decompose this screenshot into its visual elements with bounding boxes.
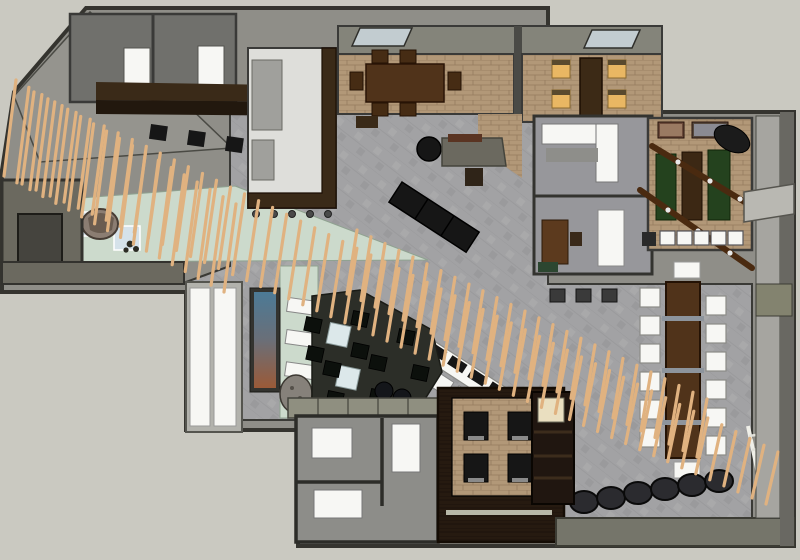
dining-room-b (522, 54, 662, 122)
lounge-west-wall (186, 282, 242, 432)
round-table (417, 137, 441, 161)
white-fixture (314, 490, 362, 518)
games-room (640, 118, 758, 268)
service-box (356, 116, 378, 128)
light-panel (214, 288, 236, 426)
white-cabinet (598, 210, 624, 266)
light-strip (446, 510, 552, 515)
end-chair (674, 262, 700, 278)
desk-chair (570, 232, 582, 246)
counter (252, 140, 274, 180)
green-mat (538, 262, 558, 272)
cube-stool (465, 168, 483, 186)
picture-art (660, 124, 682, 136)
floorplan-svg (0, 0, 800, 560)
skylight-window (584, 30, 640, 48)
dining-table (580, 58, 602, 116)
low-counter (546, 148, 598, 162)
white-fixture (392, 424, 420, 472)
white-fixture (312, 428, 352, 458)
bench (442, 138, 506, 166)
floorplan-render (0, 0, 800, 560)
white-bar-stools (660, 231, 743, 245)
south-wall (2, 262, 184, 284)
doorway (18, 214, 62, 266)
game-table-wood (682, 152, 702, 220)
mural-art (254, 292, 276, 388)
bar-end (642, 232, 656, 246)
kitchen (248, 48, 336, 218)
dark-stools (550, 289, 617, 302)
skylight-window (352, 28, 412, 46)
partition-wall (514, 26, 522, 122)
mural-wall (250, 288, 280, 392)
dining-table (366, 64, 444, 102)
counter (252, 60, 282, 130)
light-panel (190, 288, 210, 426)
wall-window (756, 284, 792, 316)
desk (542, 220, 568, 264)
bench-back (448, 134, 482, 142)
pantry-office-rooms (534, 116, 652, 274)
white-counter (596, 124, 618, 182)
